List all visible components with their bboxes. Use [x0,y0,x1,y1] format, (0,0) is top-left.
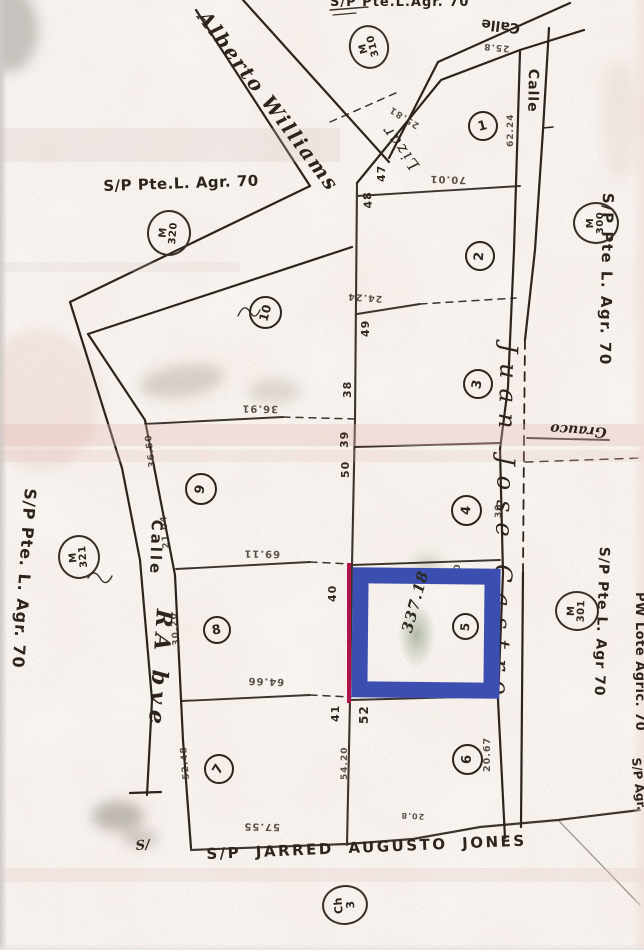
lot-9-number: 9 [193,483,210,495]
lot-8-marker: 8 [203,616,231,644]
lot-6-marker: 6 [452,744,483,775]
measurement-50: 50 [339,461,352,478]
map-linework [0,0,644,950]
measurement-70-01: 70.01 [429,173,466,185]
measurement-24-24: 24.24 [347,291,383,304]
lot-3-number: 3 [470,378,486,390]
highlight-handwritten-area: 337.18 [398,569,432,635]
lot-5-marker: 5 [452,613,479,640]
stamp-m321-number: 321 [78,545,90,568]
lot-4-number: 4 [459,505,475,515]
stamp-m320-number: 320 [168,222,180,245]
stamp-ch3-number: 3 [345,900,357,909]
measurement-48: 48 [361,191,375,209]
lot-2-number: 2 [472,251,488,261]
lot-8-number: 8 [211,622,223,638]
lot-10-number: 10 [257,303,275,323]
scanned-plat-map: Alberto Williams S/P Pte.L.Agr. 70 S/P P… [0,0,644,950]
lot-1-number: 1 [477,118,490,135]
measurement-39: 39 [338,431,351,448]
lot-7-marker: 7 [204,754,234,784]
stamp-m300-number: 300 [596,212,607,234]
lot-5-number: 5 [458,622,473,632]
lot-9-marker: 9 [185,473,217,505]
lot-7-number: 7 [210,761,228,776]
lot-1-marker: 1 [468,111,498,141]
lot-4-marker: 4 [451,495,482,526]
stamp-m301-number: 301 [577,600,588,623]
boundary-label-top-clipped: S/P Pte.L.Agr. 70 [330,0,469,10]
stamp-m310-number: 310 [366,33,382,57]
stamp-m300: M 300 [573,202,619,244]
measurement-41: 41 [329,705,342,722]
measurement-40: 40 [326,585,339,602]
boundary-label-right-edge: PW Lote Agric. 70 [632,592,644,731]
measurement-36-91: 36.91 [241,402,278,414]
measurement-54-20: 54.20 [340,747,350,780]
measurement-20-67: 20.67 [482,737,493,772]
measurement-69-11: 69.11 [243,547,280,559]
measurement-64-66: 64.66 [247,675,284,687]
highlight-rectangle[interactable]: 337.18 [351,567,500,699]
lot-10-marker: 10 [249,296,282,329]
measurement-30-a: 30 [494,503,504,518]
measurement-62-24: 62.24 [506,114,516,147]
lot-3-marker: 3 [463,369,493,399]
lot-2-marker: 2 [465,241,495,271]
boundary-label-bottom-left-partial: S/ [135,838,151,854]
measurement-20-8: 20.8 [400,811,424,821]
street-label-calle-right: Calle [524,69,541,113]
measurement-47: 47 [375,165,388,182]
highlight-red-edge-line [347,563,351,703]
measurement-57-55: 57.55 [243,820,280,832]
measurement-49: 49 [359,320,372,337]
measurement-38: 38 [341,381,354,398]
measurement-52: 52 [357,705,371,724]
lot-6-number: 6 [460,755,475,764]
